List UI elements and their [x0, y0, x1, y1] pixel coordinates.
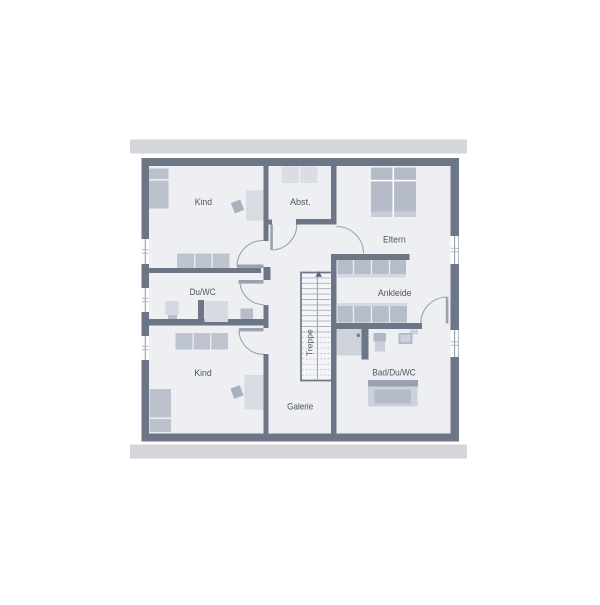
svg-text:Treppe: Treppe [304, 329, 314, 356]
svg-text:Eltern: Eltern [383, 234, 406, 244]
svg-text:Galerie: Galerie [287, 402, 313, 412]
svg-text:Ankleide: Ankleide [378, 288, 412, 298]
svg-text:Kind: Kind [195, 197, 212, 207]
svg-text:Du/WC: Du/WC [190, 287, 216, 297]
svg-text:Abst.: Abst. [290, 197, 311, 207]
svg-text:Kind: Kind [194, 368, 211, 378]
svg-text:Bad/Du/WC: Bad/Du/WC [372, 367, 416, 377]
